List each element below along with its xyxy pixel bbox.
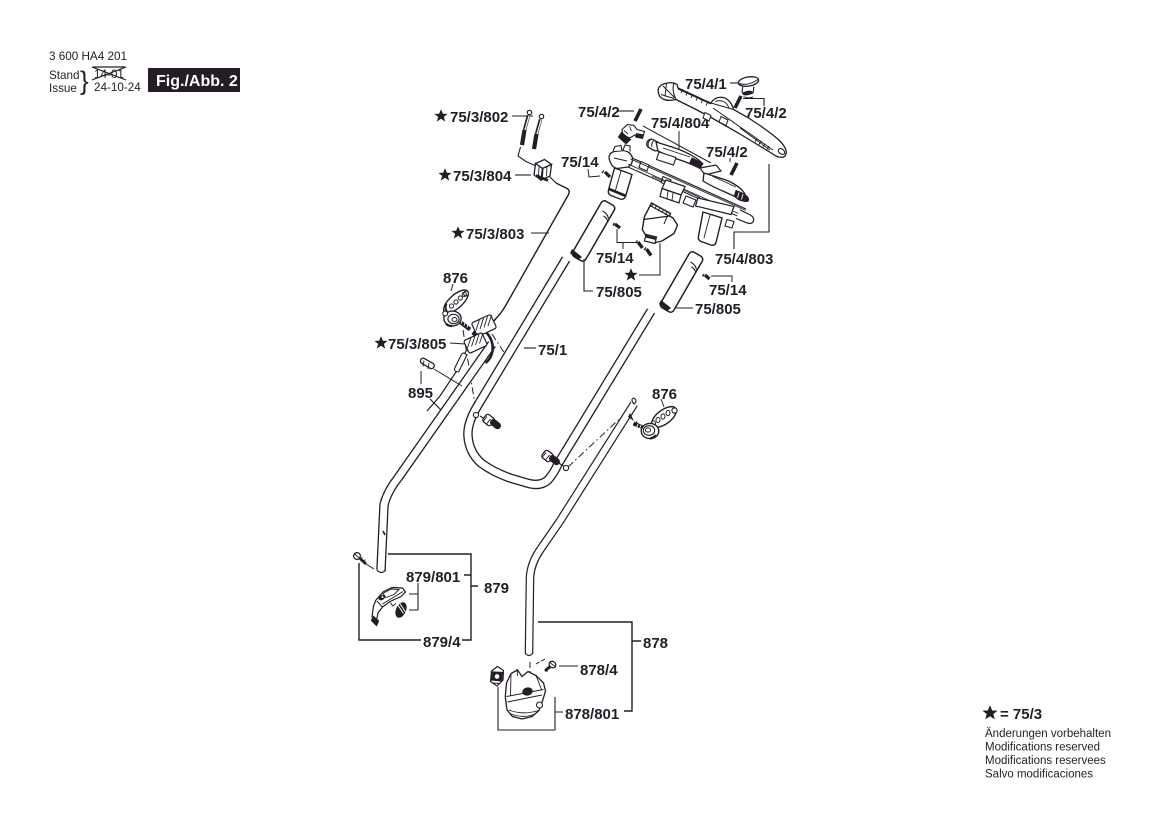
svg-text:75/4/803: 75/4/803 xyxy=(715,251,773,268)
svg-text:75/3/803: 75/3/803 xyxy=(466,226,524,243)
svg-text:Modifications reservees: Modifications reservees xyxy=(985,755,1106,767)
svg-text:878/4: 878/4 xyxy=(580,662,618,679)
svg-text:75/4/1: 75/4/1 xyxy=(685,76,727,93)
svg-text:878: 878 xyxy=(643,635,668,652)
svg-text:75/3/804: 75/3/804 xyxy=(453,168,512,185)
svg-text:Fig./Abb. 2: Fig./Abb. 2 xyxy=(156,73,238,90)
svg-text:879: 879 xyxy=(484,580,509,597)
svg-text:75/4/2: 75/4/2 xyxy=(706,144,748,161)
svg-text:876: 876 xyxy=(443,270,468,287)
svg-text:Salvo modificaciones: Salvo modificaciones xyxy=(985,769,1093,781)
svg-text:Issue: Issue xyxy=(49,82,77,95)
svg-text:= 75/3: = 75/3 xyxy=(1000,706,1042,723)
svg-text:Modifications reserved: Modifications reserved xyxy=(985,742,1100,754)
svg-text:Stand: Stand xyxy=(49,69,80,82)
svg-text:75/4/804: 75/4/804 xyxy=(651,115,710,132)
svg-text:}: } xyxy=(80,66,89,96)
svg-text:75/4/2: 75/4/2 xyxy=(578,104,620,121)
svg-text:879/801: 879/801 xyxy=(406,569,460,586)
svg-text:75/1: 75/1 xyxy=(538,342,567,359)
svg-text:878/801: 878/801 xyxy=(565,706,619,723)
svg-text:879/4: 879/4 xyxy=(423,634,461,651)
svg-text:75/14: 75/14 xyxy=(596,250,634,267)
svg-text:75/3/805: 75/3/805 xyxy=(388,336,446,353)
svg-text:75/14: 75/14 xyxy=(561,154,599,171)
svg-text:876: 876 xyxy=(652,386,677,403)
svg-text:75/4/2: 75/4/2 xyxy=(745,105,787,122)
svg-text:75/3/802: 75/3/802 xyxy=(450,109,508,126)
svg-text:Änderungen vorbehalten: Änderungen vorbehalten xyxy=(985,728,1111,740)
svg-text:75/805: 75/805 xyxy=(596,284,642,301)
svg-text:895: 895 xyxy=(408,385,433,402)
svg-text:75/805: 75/805 xyxy=(695,301,741,318)
svg-text:75/14: 75/14 xyxy=(709,282,747,299)
svg-text:3 600 HA4 201: 3 600 HA4 201 xyxy=(49,50,127,63)
svg-text:24-10-24: 24-10-24 xyxy=(94,81,141,94)
